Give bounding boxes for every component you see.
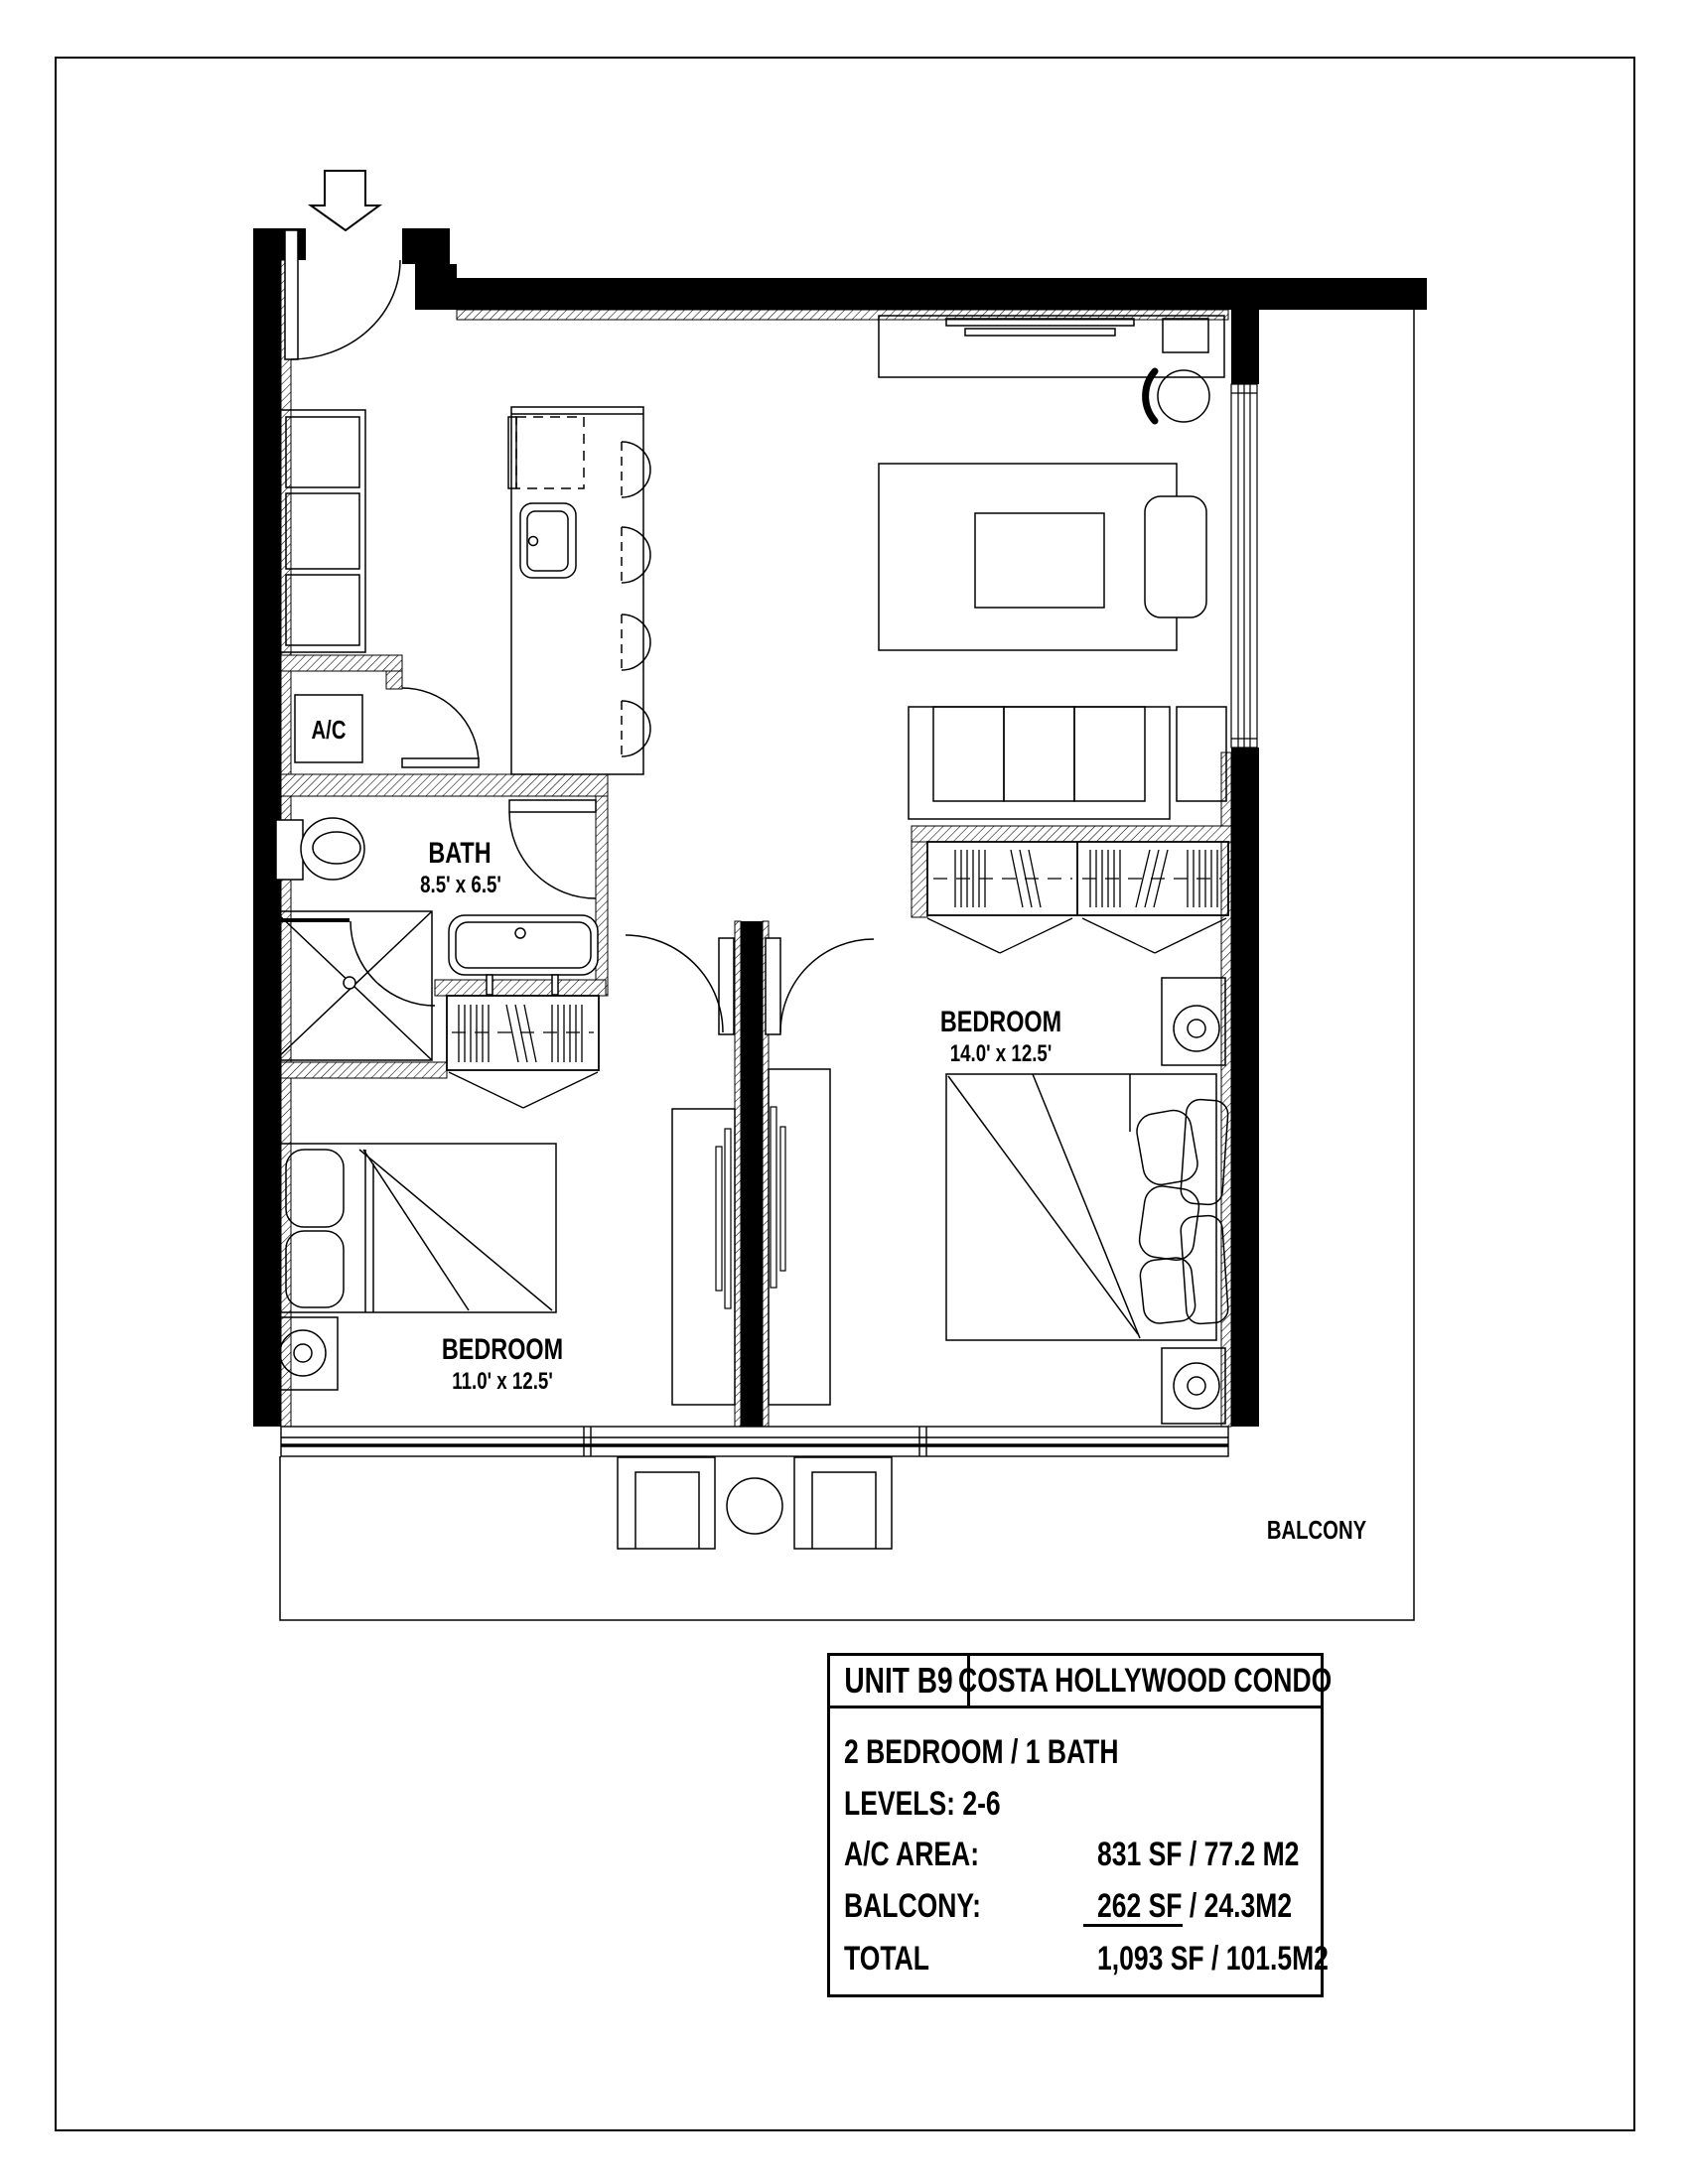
ac-closet-door <box>402 688 479 767</box>
toilet-symbol <box>276 818 364 880</box>
unit-number-cell: UNIT B9 <box>830 1656 970 1706</box>
ac-closet-label: A/C <box>312 717 347 743</box>
nightstand-right-top <box>1162 978 1225 1065</box>
table-row: LEVELS: 2-6 <box>844 1785 1313 1827</box>
window-right <box>1231 384 1257 748</box>
bed-left <box>280 1144 556 1312</box>
bath-label: BATH <box>428 839 491 869</box>
row-label: 2 BEDROOM / 1 BATH <box>844 1733 1119 1772</box>
row-label: BALCONY: <box>844 1887 981 1926</box>
bath-dims-label: 8.5' x 6.5' <box>420 874 501 897</box>
building-name-cell: COSTA HOLLYWOOD CONDO <box>970 1656 1321 1706</box>
window-band-bottom <box>281 1427 1228 1456</box>
tv-console <box>879 316 1224 377</box>
row-value: 262 SF / 24.3M2 <box>1097 1887 1292 1926</box>
loveseat <box>1145 496 1206 617</box>
balcony-label: BALCONY <box>1267 1517 1366 1543</box>
bedroom-left-dims-label: 11.0' x 12.5' <box>452 1370 553 1394</box>
closet-right <box>927 842 1228 953</box>
unit-number: UNIT B9 <box>844 1660 952 1702</box>
table-row: BALCONY: 262 SF / 24.3M2 <box>844 1887 1313 1929</box>
row-label: TOTAL <box>844 1940 929 1979</box>
bedroom-right-dims-label: 14.0' x 12.5' <box>950 1042 1053 1066</box>
kitchen-cabinets <box>280 410 365 652</box>
info-table-header: UNIT B9 COSTA HOLLYWOOD CONDO <box>830 1656 1321 1708</box>
shower-symbol <box>275 911 435 1060</box>
bedroom-right-label: BEDROOM <box>940 1008 1061 1037</box>
bedroom-left-label: BEDROOM <box>442 1335 563 1365</box>
balcony-chair-right <box>794 1457 892 1549</box>
entry-arrow-icon <box>311 171 379 230</box>
row-value: 831 SF / 77.2 M2 <box>1097 1836 1299 1874</box>
table-row: A/C AREA: 831 SF / 77.2 M2 <box>844 1836 1313 1877</box>
row-label: A/C AREA: <box>844 1836 979 1874</box>
row-value: 1,093 SF / 101.5M2 <box>1097 1940 1329 1979</box>
balcony-chair-left <box>618 1457 715 1549</box>
desk-chair <box>1146 370 1209 422</box>
subtotal-rule <box>1083 1924 1183 1927</box>
nightstand-right-bottom <box>1162 1348 1225 1424</box>
bed-right <box>946 1074 1229 1340</box>
coffee-table <box>975 513 1104 608</box>
sofa <box>909 707 1226 819</box>
row-label: LEVELS: 2-6 <box>844 1785 1001 1824</box>
floor-plan-page: A/C BATH 8.5' x 6.5' BEDROOM 14.0' x 12.… <box>0 0 1688 2184</box>
table-row: TOTAL 1,093 SF / 101.5M2 <box>844 1940 1313 1981</box>
closet-left <box>447 996 599 1108</box>
bath-door <box>509 800 596 898</box>
building-name: COSTA HOLLYWOOD CONDO <box>958 1662 1332 1701</box>
unit-info-table: UNIT B9 COSTA HOLLYWOOD CONDO 2 BEDROOM … <box>827 1653 1324 1997</box>
area-rug <box>879 464 1177 650</box>
balcony-table <box>727 1478 782 1534</box>
table-row: 2 BEDROOM / 1 BATH <box>844 1733 1313 1775</box>
kitchen-island <box>508 407 643 774</box>
